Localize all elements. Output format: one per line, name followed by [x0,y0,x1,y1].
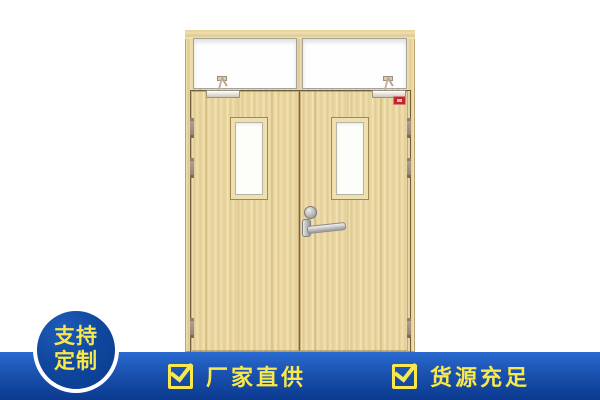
vision-panel-right [332,118,368,199]
banner-feature-2: 货源充足 [392,352,530,400]
door-closer-right [372,76,404,98]
badge-line-1: 支持 [54,325,98,350]
checkbox-checked-icon [392,364,417,389]
banner-feature-1-label: 厂家直供 [206,360,306,392]
fire-rating-label [393,96,406,105]
hinge [190,118,194,138]
door-closer-left [206,76,238,98]
lock-cylinder [304,206,317,219]
checkbox-checked-icon [168,364,193,389]
door-handle [300,219,344,237]
banner-feature-2-label: 货源充足 [430,360,530,392]
vision-panel-left [231,118,267,199]
promo-image: 厂家直供 货源充足 支持 定制 [0,0,600,400]
hinge [407,158,411,178]
hinge [190,318,194,338]
hinge [407,118,411,138]
hinge [407,318,411,338]
badge-line-2: 定制 [54,350,98,375]
hinge [190,158,194,178]
customization-badge: 支持 定制 [33,307,119,393]
banner-feature-1: 厂家直供 [168,352,306,400]
